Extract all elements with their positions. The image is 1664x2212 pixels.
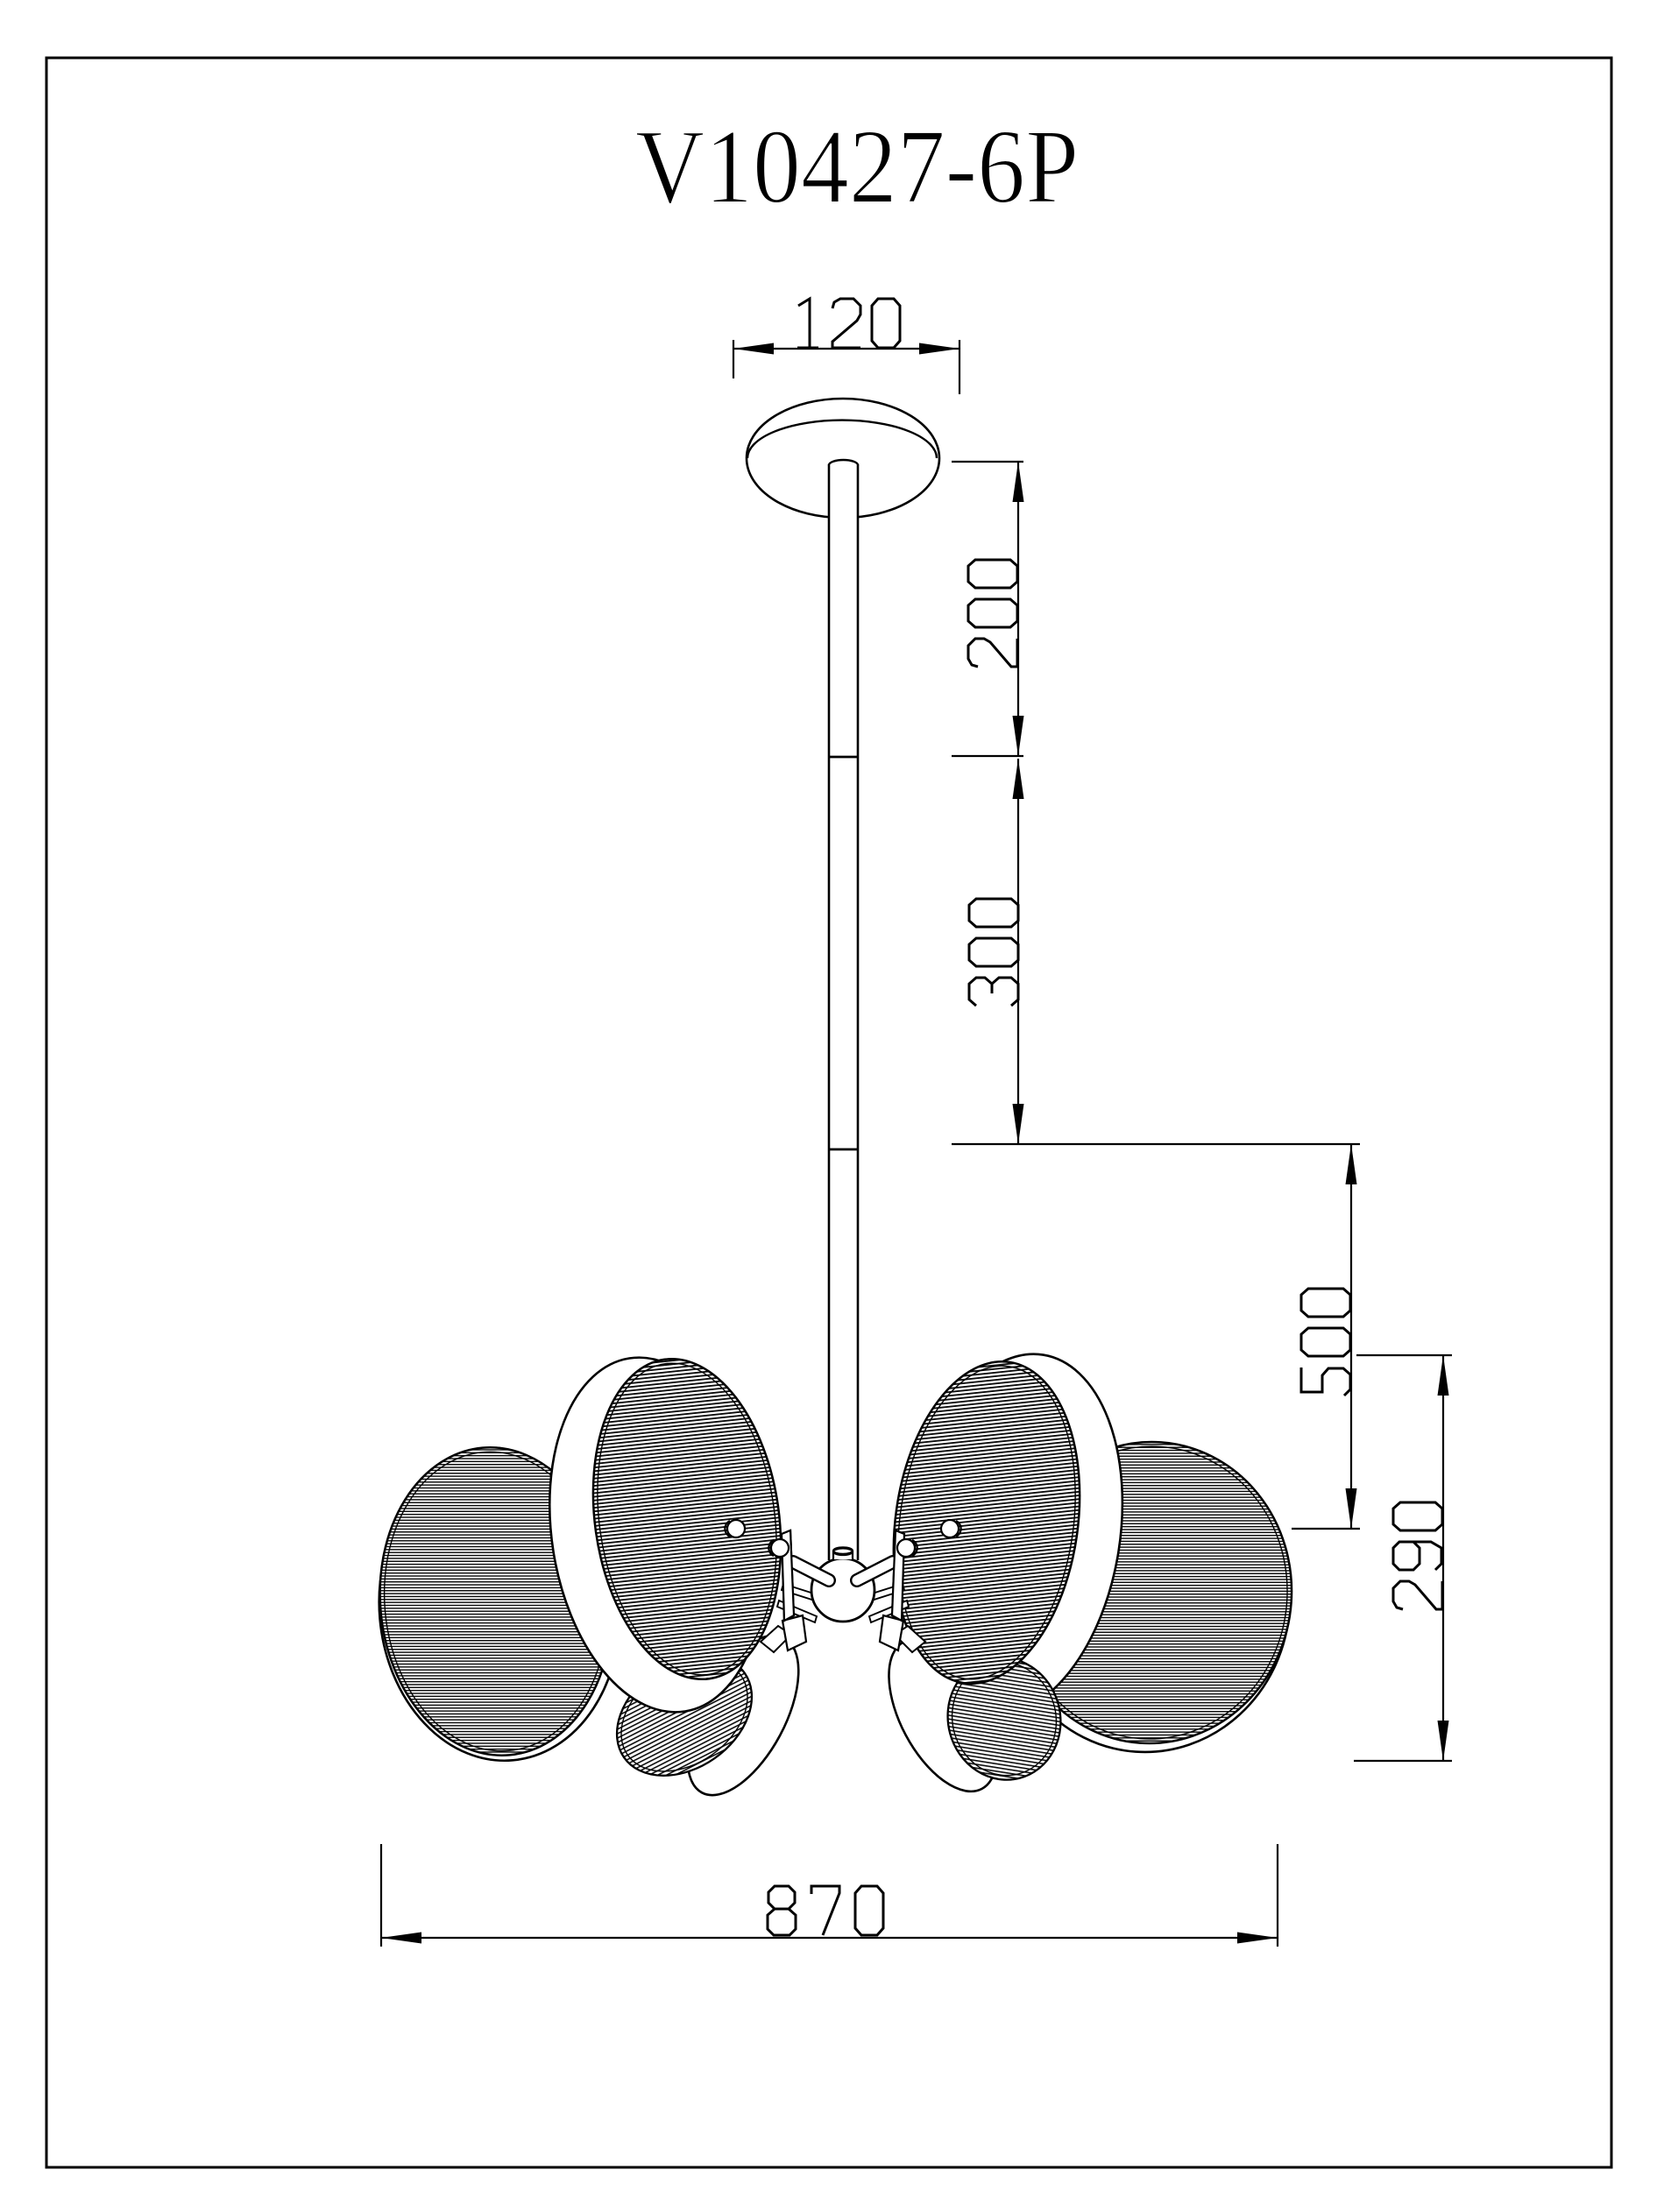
svg-text:V10427-6P: V10427-6P xyxy=(635,109,1079,227)
